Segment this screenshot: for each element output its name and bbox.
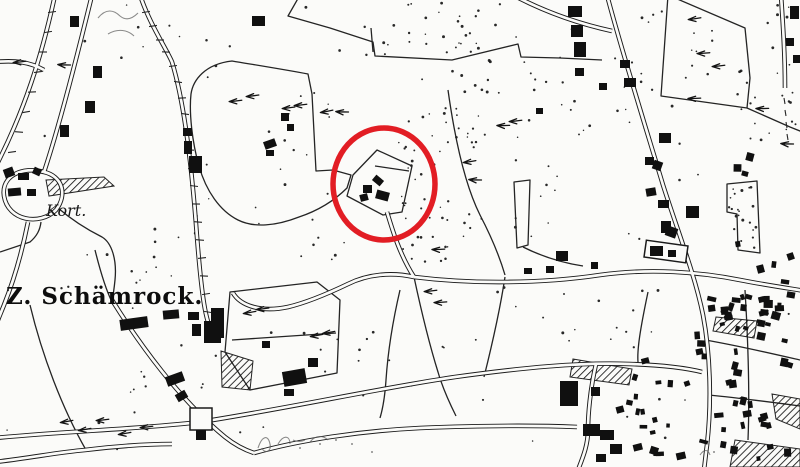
roads-layer — [0, 0, 800, 467]
enclosure-pens-layer — [190, 240, 688, 430]
historical-map-canvas: Kort. Z. Schämrock. — [0, 0, 800, 467]
label-kort: Kort. — [45, 201, 86, 220]
map-screenshot: Kort. Z. Schämrock. — [0, 0, 800, 467]
village-buildings-layer — [615, 152, 795, 461]
field-boundaries-layer — [0, 0, 800, 450]
label-schamrock: Z. Schämrock. — [6, 283, 203, 310]
